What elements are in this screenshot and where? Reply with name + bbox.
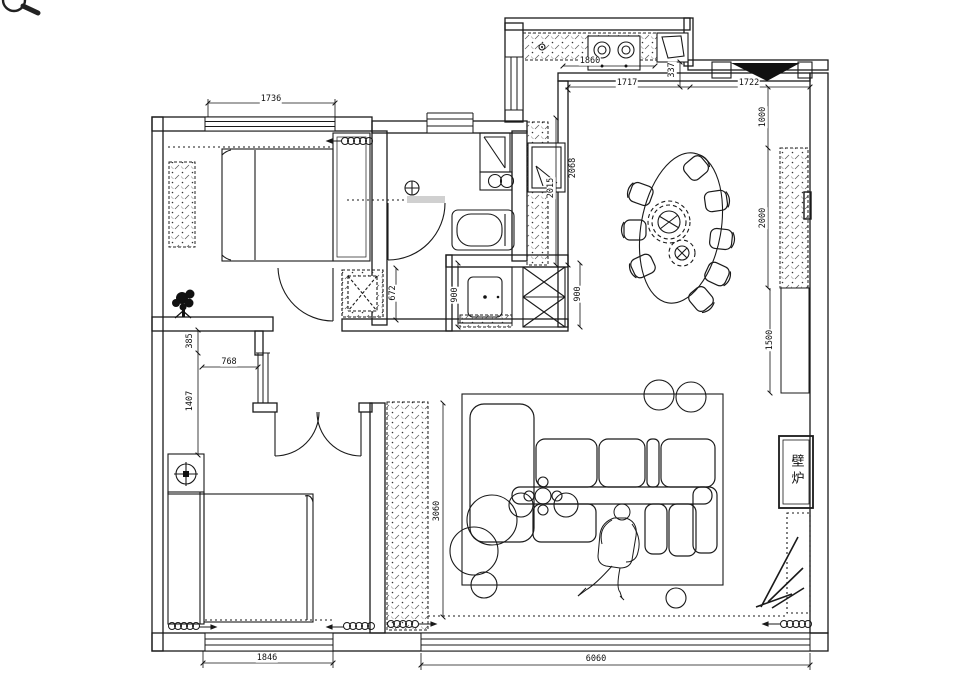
branch-decor-icon — [756, 537, 804, 608]
dim-hall-seg1: 385 — [186, 332, 195, 349]
living-room — [450, 288, 813, 608]
dim-bd2-window: 1846 — [256, 654, 278, 663]
bd1-door-icon — [278, 268, 333, 321]
pouf-icons — [450, 380, 706, 608]
dim-right-seg1: 1000 — [759, 106, 768, 128]
dim-flue-width: 900 — [574, 285, 583, 302]
dim-kitchen-depth-outer: 2068 — [569, 157, 578, 179]
dim-kitchen-counter: 1860 — [579, 57, 601, 66]
dim-right-seg3: 1500 — [766, 329, 775, 351]
lazy-susan-center — [658, 211, 689, 260]
dim-living-window: 6060 — [585, 655, 607, 664]
threshold — [407, 196, 445, 203]
hall-window-icon — [256, 353, 270, 403]
dim-bd1-window: 1736 — [260, 95, 282, 104]
dim-dining-top-left: 1717 — [616, 79, 638, 88]
ac-box-icon — [168, 454, 204, 494]
dim-right-seg2: 2000 — [759, 207, 768, 229]
bd1-wardrobe-icon — [169, 162, 195, 247]
fireplace-label: 壁炉 — [787, 454, 806, 488]
living-wardrobe-icon — [387, 402, 428, 630]
dim-shower-depth: 672 — [389, 284, 398, 301]
bd2-double-door-icon — [275, 412, 361, 456]
guide-lines — [168, 147, 810, 620]
floor-plan-page: 1736 1860 337 1717 1722 1000 2000 1500 2… — [0, 0, 957, 687]
kitchen-sink-icon — [657, 33, 688, 62]
dim-hall-opening: 768 — [220, 358, 237, 367]
bath-window-icon — [427, 113, 473, 133]
bed-icon — [222, 133, 370, 261]
sofa-icon — [470, 404, 717, 556]
bd1-window-icon — [205, 117, 335, 131]
dim-hall-seg2: 1407 — [186, 390, 195, 412]
living-window-icon — [421, 633, 810, 651]
drain-icon — [405, 181, 419, 195]
bathtub-icon — [452, 210, 514, 250]
bathroom-door-icon — [388, 203, 445, 260]
mirror-icon — [480, 133, 510, 172]
dining-chairs — [622, 152, 736, 316]
dim-laundry-width: 900 — [451, 286, 460, 303]
windows — [205, 57, 810, 651]
bedroom2 — [168, 454, 313, 624]
coffee-table-icon — [509, 477, 578, 517]
floor-plan-drawing — [0, 0, 957, 687]
dimension-lines — [198, 62, 810, 670]
console-table — [781, 288, 809, 393]
person-icon — [578, 504, 639, 600]
bedroom1 — [172, 133, 383, 318]
walls — [152, 18, 828, 651]
dim-kitchen-depth-inner: 2015 — [547, 177, 556, 199]
dim-dining-top-right: 1722 — [738, 79, 760, 88]
magnifier-icon[interactable] — [3, 0, 38, 13]
shower-icon — [342, 270, 383, 317]
kitchen-window-icon — [505, 57, 523, 110]
tree-icon — [172, 290, 195, 319]
dim-kitchen-offset: 337 — [668, 61, 677, 78]
bed-icon — [168, 492, 313, 624]
vanity-sink-icon — [480, 172, 514, 190]
dim-living-cabinet-run: 3060 — [433, 500, 442, 522]
bd2-window-icon — [205, 633, 333, 651]
flue-shaft-icon — [523, 267, 565, 327]
